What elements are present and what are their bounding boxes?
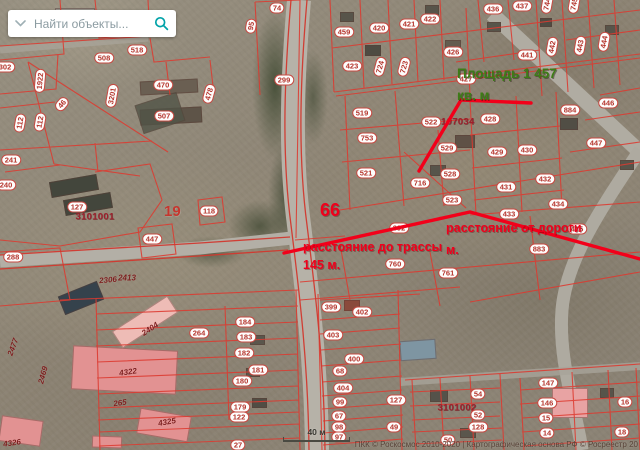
map-canvas[interactable]: 7495299459420421422423724723436437426441… xyxy=(0,0,640,450)
scale-bar-line xyxy=(283,437,350,442)
scale-bar: 40 м xyxy=(283,428,350,442)
highway-distance-line1: расстояние до трассы xyxy=(303,240,442,254)
map-attribution: ПКК © Роскосмос 2010-2020 | Картографиче… xyxy=(355,440,638,449)
area-annotation-line2: кв. м xyxy=(457,88,490,103)
search-input[interactable] xyxy=(32,16,150,32)
highway-distance-line2: 145 м. xyxy=(303,258,340,272)
scale-bar-label: 40 м xyxy=(283,428,350,437)
search-box[interactable] xyxy=(8,10,176,37)
chevron-down-icon[interactable] xyxy=(15,20,26,27)
road-distance-line1: расстояние от дороги xyxy=(446,221,582,235)
search-icon[interactable] xyxy=(154,16,169,31)
area-annotation-line1: Площадь 1 457 xyxy=(457,66,557,81)
road-distance-line2: м. xyxy=(446,243,459,257)
parcel-number-big: 66 xyxy=(320,200,340,221)
